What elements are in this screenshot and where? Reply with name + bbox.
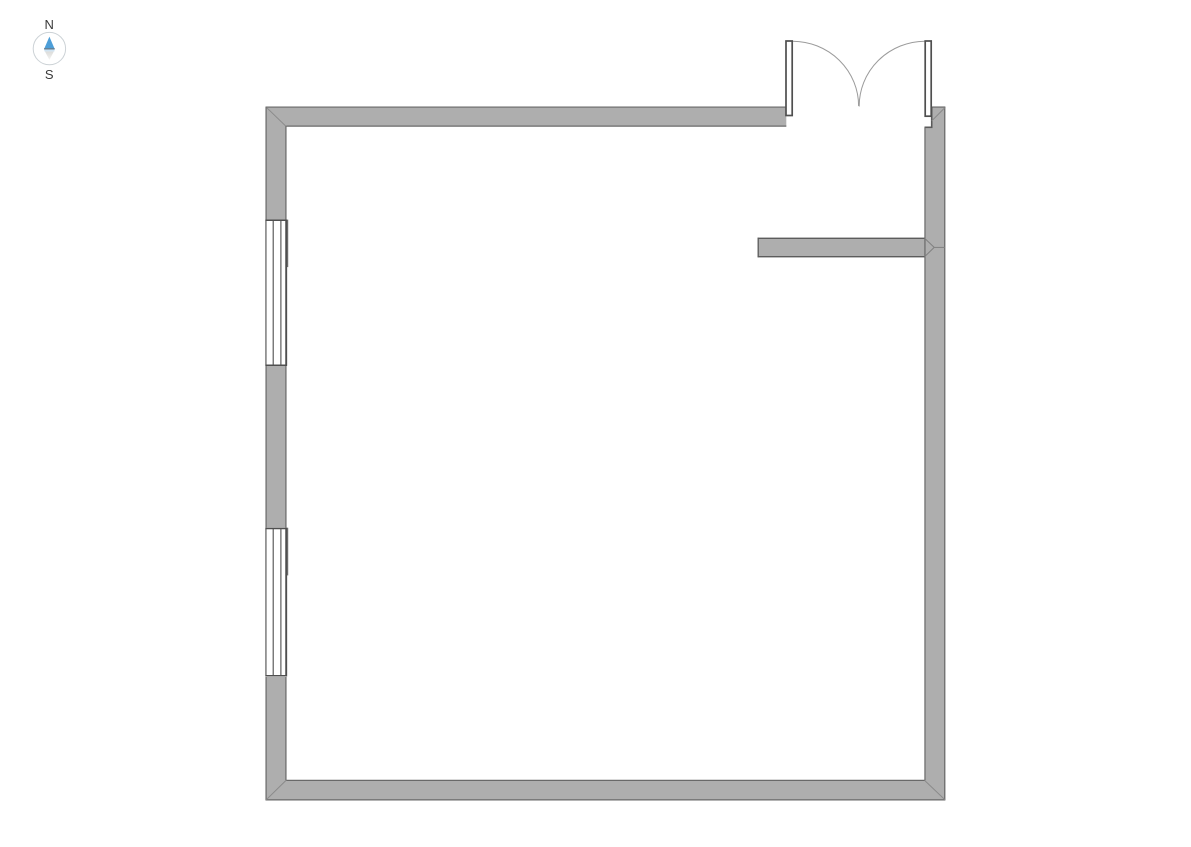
- svg-text:N: N: [45, 17, 54, 32]
- svg-text:S: S: [45, 67, 54, 82]
